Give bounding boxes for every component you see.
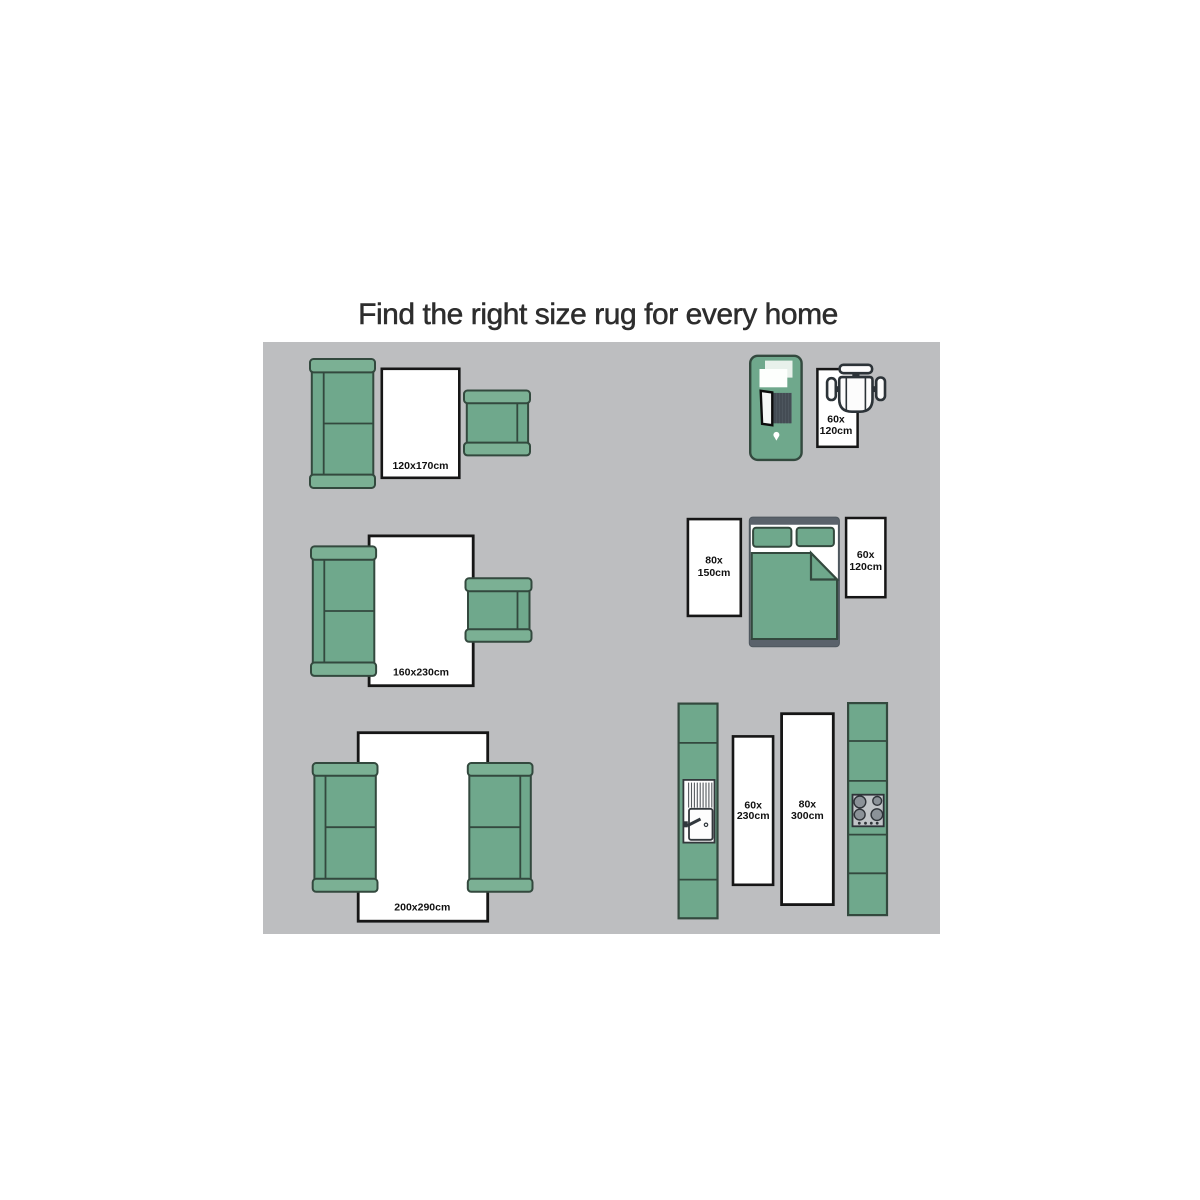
svg-text:60x: 60x bbox=[827, 414, 845, 426]
svg-text:120cm: 120cm bbox=[820, 425, 853, 437]
svg-text:150cm: 150cm bbox=[698, 567, 731, 579]
svg-text:80x: 80x bbox=[705, 555, 723, 567]
svg-text:300cm: 300cm bbox=[791, 810, 824, 822]
svg-text:160x230cm: 160x230cm bbox=[393, 667, 449, 679]
svg-text:230cm: 230cm bbox=[737, 810, 770, 822]
svg-text:Find the right size rug for ev: Find the right size rug for every home bbox=[358, 298, 838, 331]
svg-text:60x: 60x bbox=[857, 549, 875, 561]
svg-text:120x170cm: 120x170cm bbox=[392, 460, 448, 472]
svg-text:80x: 80x bbox=[799, 799, 817, 811]
svg-text:120cm: 120cm bbox=[849, 561, 882, 573]
svg-text:200x290cm: 200x290cm bbox=[394, 902, 450, 914]
